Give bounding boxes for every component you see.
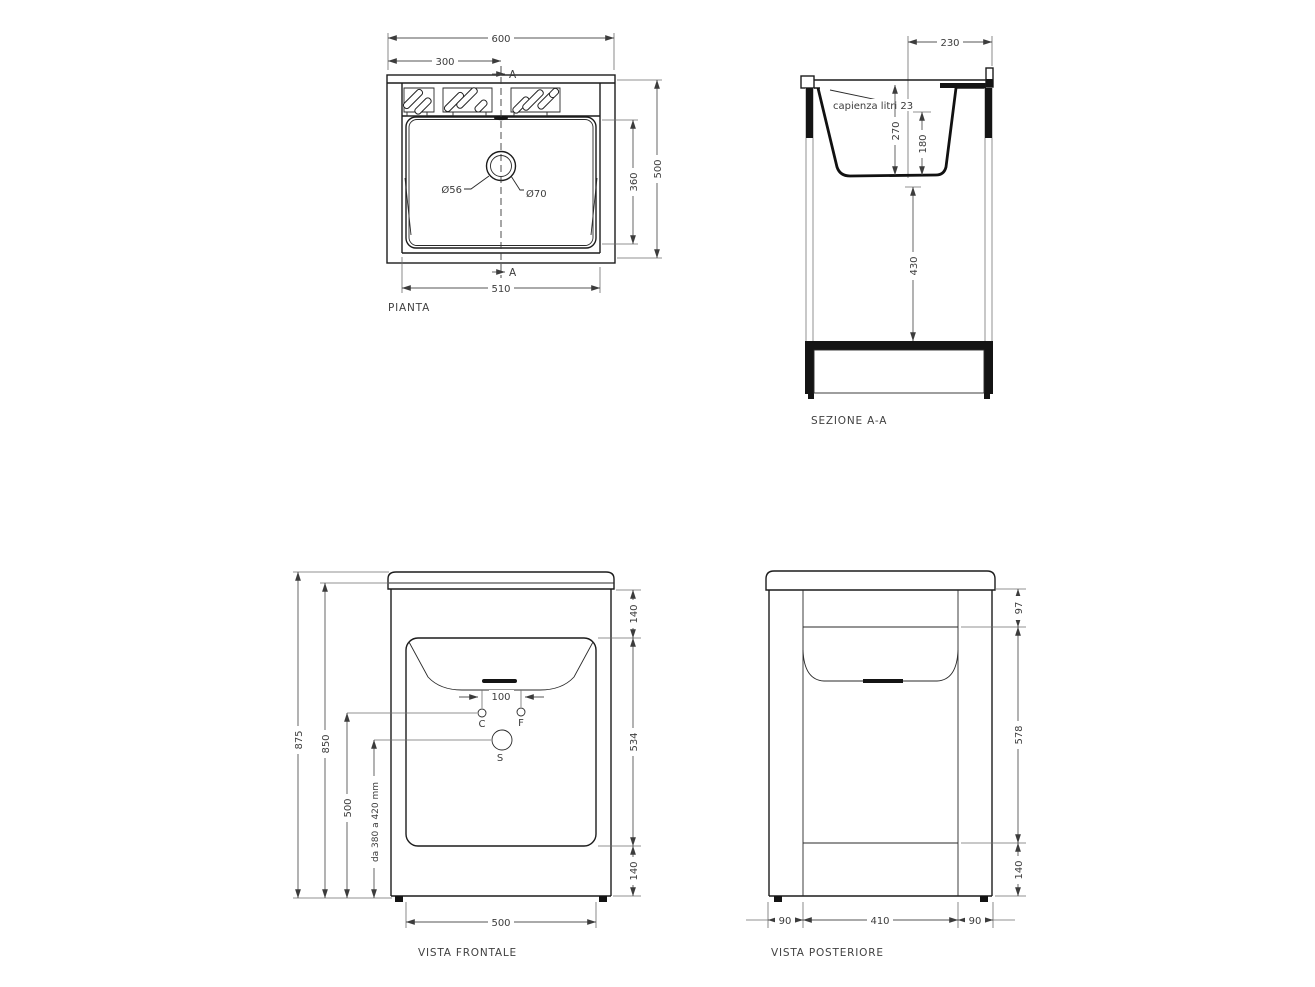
right-leg-fill xyxy=(985,88,992,138)
cold-tap-hole xyxy=(517,708,525,716)
dim-text-500-depth: 500 xyxy=(651,155,664,183)
dim-text-90-left: 90 xyxy=(775,914,795,927)
front-body-outline xyxy=(391,589,611,896)
technical-drawing-sheet: Ø56 Ø70 A A 600 300 510 500 xyxy=(0,0,1315,987)
base-left-column xyxy=(805,341,814,394)
left-foot xyxy=(808,394,814,399)
dim-text-410: 410 xyxy=(867,914,893,927)
dim-text-300: 300 xyxy=(432,55,458,68)
dim-text-97: 97 xyxy=(1012,596,1025,620)
dim-text-578: 578 xyxy=(1012,721,1025,749)
label-c: C xyxy=(479,719,486,730)
svg-text:97: 97 xyxy=(1014,602,1025,615)
rear-basin-curve xyxy=(803,650,958,681)
front-left-foot xyxy=(395,896,403,902)
rear-overflow-slot xyxy=(863,679,903,683)
rear-left-foot xyxy=(774,896,782,902)
dim-text-270: 270 xyxy=(889,117,902,145)
label-s: S xyxy=(497,753,503,764)
plan-view: Ø56 Ø70 A A 600 300 510 500 xyxy=(387,32,664,314)
section-marker-top: A xyxy=(509,69,517,81)
section-view-title: SEZIONE A-A xyxy=(811,415,887,427)
front-basin-recess xyxy=(406,638,596,846)
dim-text-140-top: 140 xyxy=(627,600,640,628)
dim-text-600: 600 xyxy=(488,32,514,45)
front-view: C F S 100 875 850 500 xyxy=(292,572,641,959)
counter-rear-fill xyxy=(940,83,986,88)
svg-text:430: 430 xyxy=(909,256,920,275)
svg-text:360: 360 xyxy=(629,172,640,191)
rear-panel-lines xyxy=(803,590,958,896)
dim-text-230: 230 xyxy=(937,36,963,49)
plan-view-title: PIANTA xyxy=(388,302,430,314)
front-right-foot xyxy=(599,896,607,902)
drain-small-label: Ø56 xyxy=(441,184,462,196)
svg-text:600: 600 xyxy=(491,34,510,45)
dim-text-850: 850 xyxy=(319,730,332,758)
label-f: F xyxy=(518,718,524,729)
svg-text:270: 270 xyxy=(891,121,902,140)
section-marker-bottom: A xyxy=(509,267,517,279)
plan-washboard-slats xyxy=(402,87,560,116)
svg-text:850: 850 xyxy=(321,734,332,753)
rear-counter-outline xyxy=(766,571,995,590)
svg-text:capienza litri 23: capienza litri 23 xyxy=(833,101,913,112)
left-leg-fill xyxy=(806,88,813,138)
svg-text:578: 578 xyxy=(1014,725,1025,744)
svg-text:100: 100 xyxy=(491,692,510,703)
svg-text:410: 410 xyxy=(870,916,889,927)
drain-large-label: Ø70 xyxy=(526,188,547,200)
dim-text-534: 534 xyxy=(627,728,640,756)
front-overflow-slot xyxy=(482,679,517,683)
dim-text-510: 510 xyxy=(488,282,514,295)
dim-text-875: 875 xyxy=(292,726,305,754)
section-view: 230 capienza litri 23 270 xyxy=(801,36,993,427)
svg-text:500: 500 xyxy=(491,918,510,929)
dim-text-90-right: 90 xyxy=(965,914,985,927)
svg-text:300: 300 xyxy=(435,57,454,68)
section-extension-lines xyxy=(905,36,992,187)
right-foot xyxy=(984,394,990,399)
hot-tap-hole xyxy=(478,709,486,717)
base-right-column xyxy=(984,341,993,394)
dim-text-140-rear: 140 xyxy=(1012,856,1025,884)
svg-text:534: 534 xyxy=(629,732,640,751)
front-left-extension-lines xyxy=(293,572,389,583)
rear-view-title: VISTA POSTERIORE xyxy=(771,947,884,959)
drain-hole xyxy=(492,730,512,750)
capacity-note: capienza litri 23 xyxy=(832,99,916,112)
base-shelf-panel xyxy=(814,350,984,393)
rear-view: 97 578 140 90 410 90 VISTA POSTERIORE xyxy=(746,571,1026,959)
svg-text:da 380 a 420 mm: da 380 a 420 mm xyxy=(371,782,381,862)
svg-text:90: 90 xyxy=(779,916,792,927)
washboard-slat xyxy=(474,99,488,113)
front-view-title: VISTA FRONTALE xyxy=(418,947,517,959)
svg-text:140: 140 xyxy=(629,604,640,623)
dim-text-430: 430 xyxy=(907,252,920,280)
svg-text:230: 230 xyxy=(940,38,959,49)
svg-text:500: 500 xyxy=(653,159,664,178)
dim-text-500-bottom: 500 xyxy=(488,916,514,929)
dim-text-100: 100 xyxy=(489,690,514,703)
svg-text:90: 90 xyxy=(969,916,982,927)
front-leader-lines xyxy=(347,713,491,740)
rear-body-outline xyxy=(769,590,992,896)
svg-text:500: 500 xyxy=(343,798,354,817)
svg-text:140: 140 xyxy=(1014,860,1025,879)
svg-text:510: 510 xyxy=(491,284,510,295)
backsplash-lip-fill xyxy=(986,79,993,87)
svg-text:140: 140 xyxy=(629,861,640,880)
dim-text-500-taps: 500 xyxy=(341,794,354,822)
base-shelf-top xyxy=(806,341,992,350)
dim-text-180: 180 xyxy=(916,130,929,158)
plan-extension-lines xyxy=(388,33,662,293)
svg-text:180: 180 xyxy=(918,134,929,153)
rear-right-foot xyxy=(980,896,988,902)
dim-text-360: 360 xyxy=(627,168,640,196)
svg-text:875: 875 xyxy=(294,730,305,749)
front-counter-outline xyxy=(388,572,614,589)
dim-text-140-bottom: 140 xyxy=(627,857,640,885)
counter-bullnose xyxy=(801,76,814,88)
dim-text-drain-range: da 380 a 420 mm xyxy=(368,776,381,868)
drawing-canvas: Ø56 Ø70 A A 600 300 510 500 xyxy=(0,0,1315,987)
